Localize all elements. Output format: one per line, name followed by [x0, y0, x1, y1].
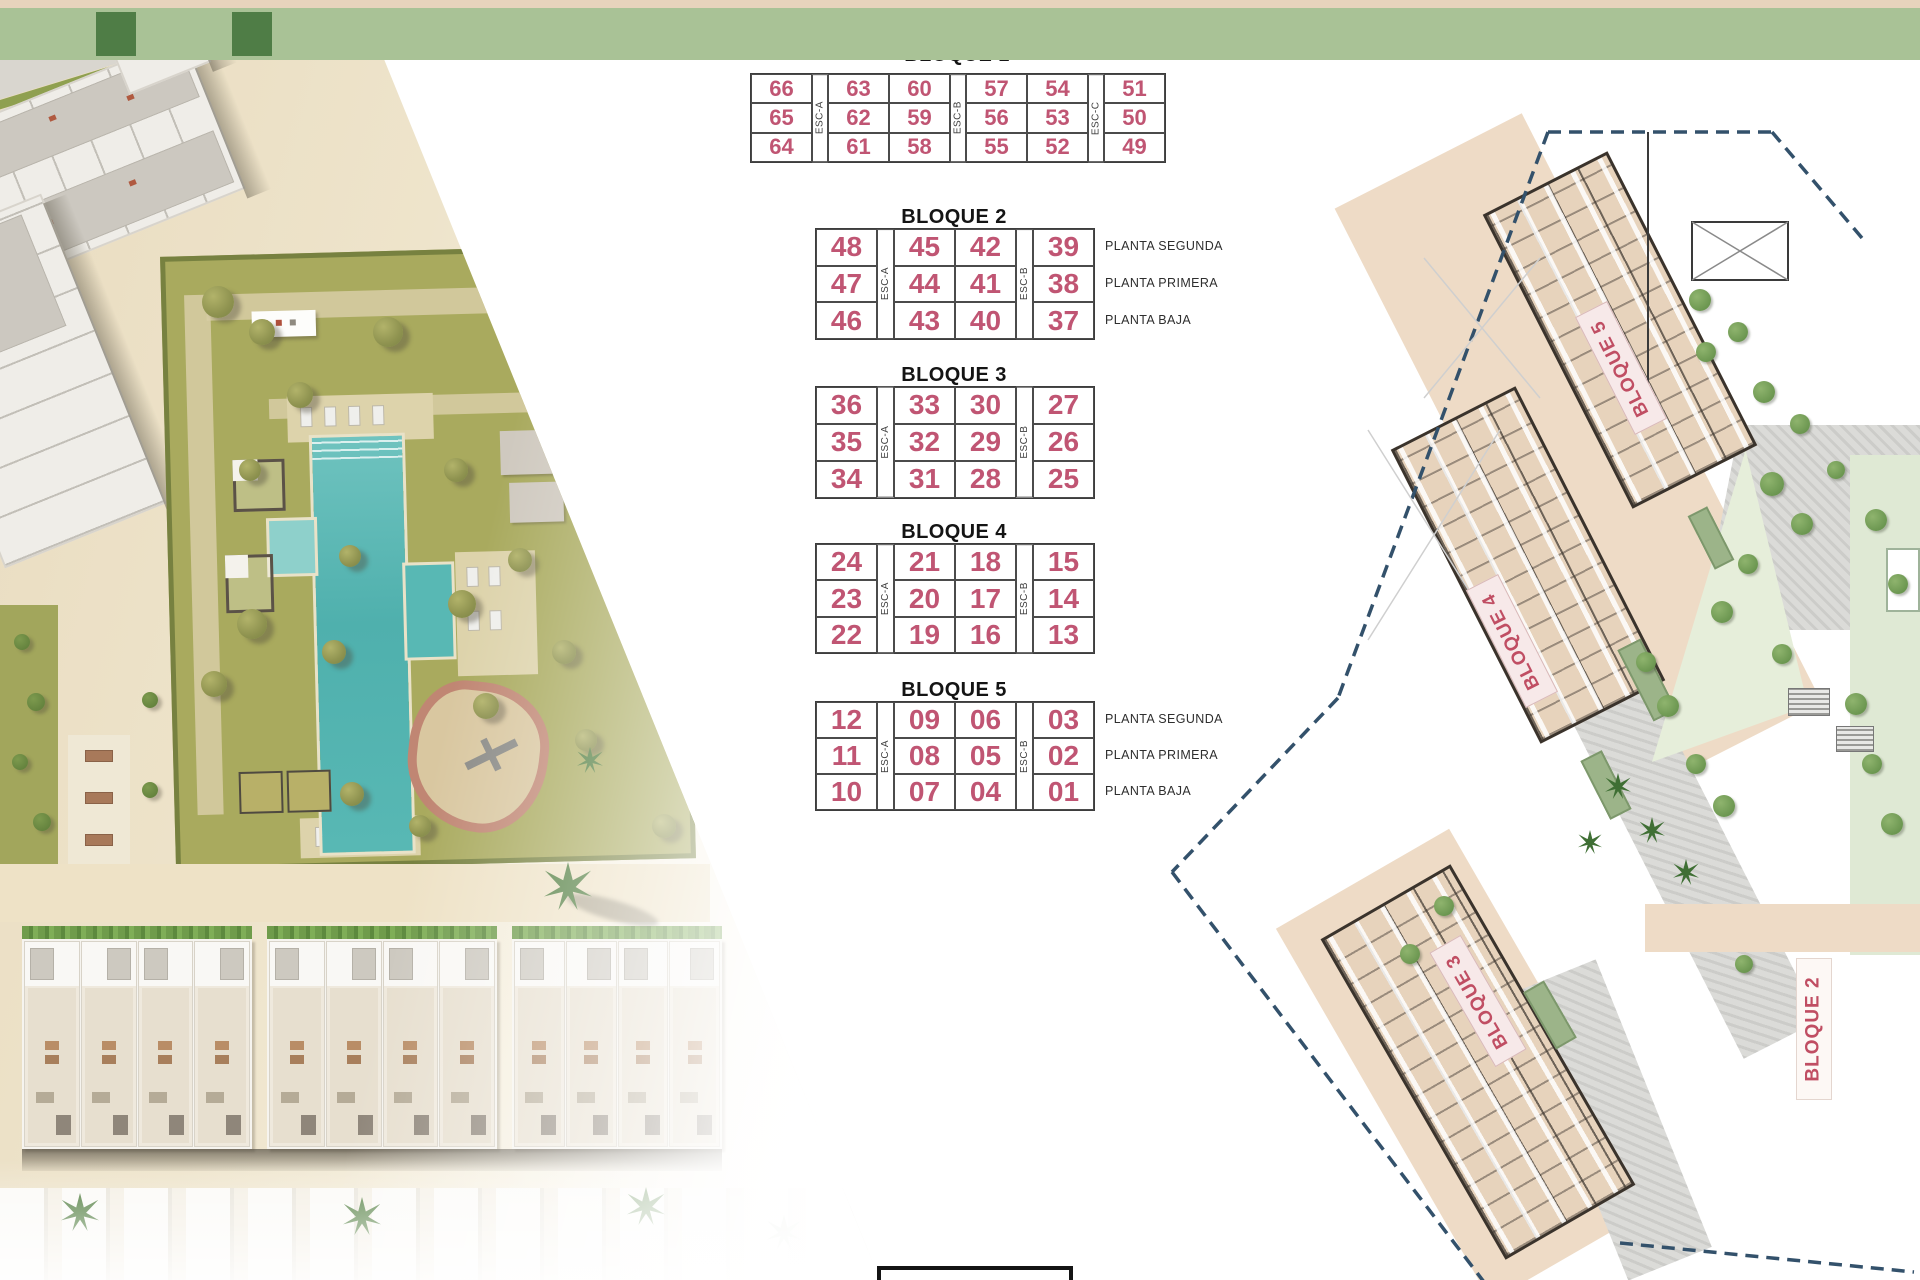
unit-number-cell: 33 [894, 387, 955, 424]
plan-tree [1791, 513, 1813, 535]
garden-plot [287, 770, 332, 813]
pergola [225, 554, 275, 613]
hedge [512, 926, 722, 939]
unit-number-cell: 25 [1033, 461, 1094, 498]
unit-number-cell: 38 [1033, 266, 1094, 303]
swimming-pool-extension [405, 564, 453, 657]
esc-stair-label: ESC-B [1016, 229, 1033, 339]
tree [591, 511, 617, 537]
unit-number-cell: 46 [816, 302, 877, 339]
unit-number-cell: 17 [955, 580, 1016, 616]
floor-label-planta-segunda: PLANTA SEGUNDA [1105, 713, 1275, 726]
floor-label-planta-baja: PLANTA BAJA [1105, 314, 1275, 327]
unit-number-cell: 40 [955, 302, 1016, 339]
unit-number-cell: 21 [894, 544, 955, 580]
bloque2-garden-band [0, 8, 1920, 60]
garden-plot [239, 771, 284, 814]
unit-number-cell: 30 [955, 387, 1016, 424]
plan-tree [1711, 601, 1733, 623]
townhouse-unit [384, 942, 438, 1146]
unit-number-cell: 03 [1033, 702, 1094, 738]
bloque4-title: BLOQUE 4 [815, 521, 1093, 544]
unit-number-cell: 52 [1027, 133, 1088, 162]
townhouse-unit [670, 942, 719, 1146]
plan-pergola [1788, 688, 1830, 716]
unit-number-cell: 12 [816, 702, 877, 738]
unit-number-cell: 01 [1033, 774, 1094, 810]
esc-stair-label: ESC-A [877, 387, 894, 498]
boundary-top-right [1772, 132, 1862, 238]
townhouse-shadow [22, 1149, 722, 1171]
tree [575, 729, 597, 751]
unit-number-cell: 09 [894, 702, 955, 738]
unit-number-cell: 60 [889, 74, 950, 103]
aerial-render-photo [0, 0, 880, 1280]
esc-stair-label: ESC-A [877, 702, 894, 810]
unit-number-cell: 24 [816, 544, 877, 580]
plan-tree [1728, 322, 1748, 342]
townhouse-row [22, 925, 722, 1160]
tree [444, 458, 468, 482]
cabana [500, 430, 561, 476]
plan-tree [1845, 693, 1867, 715]
unit-number-cell: 36 [816, 387, 877, 424]
bush [142, 782, 158, 798]
unit-number-cell: 10 [816, 774, 877, 810]
unit-number-cell: 66 [751, 74, 812, 103]
unit-number-cell: 23 [816, 580, 877, 616]
tree [201, 671, 227, 697]
esc-stair-label: ESC-B [950, 74, 966, 162]
unit-number-cell: 22 [816, 617, 877, 653]
bloque3-unit-table: 363534ESC-A333231302928ESC-B272625 [815, 386, 1095, 499]
unit-number-cell: 14 [1033, 580, 1094, 616]
unit-number-cell: 15 [1033, 544, 1094, 580]
bloque2-unit-table: 484746ESC-A454443424140ESC-B393837 [815, 228, 1095, 340]
tree [373, 317, 403, 347]
plan-tree [1760, 472, 1784, 496]
hedge [232, 12, 272, 56]
plan-tree [1888, 574, 1908, 594]
townhouse-unit [440, 942, 494, 1146]
plan-tree [1686, 754, 1706, 774]
plan-tree [1753, 381, 1775, 403]
plan-tree [1738, 554, 1758, 574]
tree [237, 609, 267, 639]
tree [287, 382, 313, 408]
unit-number-cell: 08 [894, 738, 955, 774]
page: BLOQUE 1 666564ESC-A636261605958ESC-B575… [0, 0, 1920, 1280]
unit-number-cell: 56 [966, 103, 1027, 132]
garden-walkway [68, 735, 130, 867]
bloque2-terrace-band [0, 0, 1920, 8]
esc-stair-label: ESC-A [877, 229, 894, 339]
unit-number-cell: 39 [1033, 229, 1094, 266]
floor-label-planta-segunda: PLANTA SEGUNDA [1105, 240, 1275, 253]
plan-tree [1400, 944, 1420, 964]
unit-number-cell: 48 [816, 229, 877, 266]
unit-number-cell: 34 [816, 461, 877, 498]
plan-tree [1434, 896, 1454, 916]
plan-tree [1790, 414, 1810, 434]
bloque2-title: BLOQUE 2 [815, 206, 1093, 229]
unit-number-cell: 13 [1033, 617, 1094, 653]
unit-number-cell: 55 [966, 133, 1027, 162]
tree [202, 286, 234, 318]
esc-stair-label: ESC-A [812, 74, 828, 162]
esc-stair-label: ESC-A [877, 544, 894, 653]
floor-label-planta-primera: PLANTA PRIMERA [1105, 749, 1275, 762]
unit-number-cell: 29 [955, 424, 1016, 461]
townhouse-block [512, 939, 722, 1149]
townhouse-unit [270, 942, 324, 1146]
townhouse-unit [619, 942, 668, 1146]
bush [142, 692, 158, 708]
garden-path [184, 295, 224, 816]
unit-number-cell: 35 [816, 424, 877, 461]
unit-number-cell: 32 [894, 424, 955, 461]
bush [33, 813, 51, 831]
plan-tree [1881, 813, 1903, 835]
townhouse-block [267, 939, 497, 1149]
tree [448, 590, 476, 618]
unit-number-cell: 49 [1104, 133, 1165, 162]
cabana [509, 481, 564, 522]
unit-number-cell: 11 [816, 738, 877, 774]
unit-number-cell: 16 [955, 617, 1016, 653]
esc-stair-label: ESC-C [1088, 74, 1104, 162]
unit-number-cell: 58 [889, 133, 950, 162]
tree [340, 782, 364, 806]
plan-tree [1772, 644, 1792, 664]
tree [508, 548, 532, 572]
unit-number-cell: 51 [1104, 74, 1165, 103]
townhouse-unit [139, 942, 193, 1146]
unit-number-cell: 31 [894, 461, 955, 498]
townhouse-unit [327, 942, 381, 1146]
townhouse-unit [515, 942, 564, 1146]
tree [648, 676, 672, 700]
unit-number-cell: 50 [1104, 103, 1165, 132]
plan-tree [1657, 695, 1679, 717]
unit-number-cell: 53 [1027, 103, 1088, 132]
unit-number-cell: 05 [955, 738, 1016, 774]
tree [552, 640, 576, 664]
unit-number-cell: 07 [894, 774, 955, 810]
unit-number-cell: 04 [955, 774, 1016, 810]
unit-number-cell: 62 [828, 103, 889, 132]
plan-palm-tree [1578, 830, 1602, 854]
esc-stair-label: ESC-B [1016, 544, 1033, 653]
parking-ramp [1692, 222, 1788, 280]
unit-number-cell: 06 [955, 702, 1016, 738]
plan-pergola [1836, 726, 1874, 752]
townhouse-block [22, 939, 252, 1149]
unit-number-cell: 57 [966, 74, 1027, 103]
tree [599, 291, 625, 317]
unit-number-cell: 20 [894, 580, 955, 616]
hedge [96, 12, 136, 56]
plan-tree [1636, 652, 1656, 672]
airplane-play-structure [464, 739, 518, 771]
unit-number-cell: 59 [889, 103, 950, 132]
unit-number-cell: 43 [894, 302, 955, 339]
floor-label-planta-baja: PLANTA BAJA [1105, 785, 1275, 798]
plan-tree [1689, 289, 1711, 311]
plan-tree [1713, 795, 1735, 817]
hedge [267, 926, 497, 939]
tree [339, 545, 361, 567]
plan-tree [1696, 342, 1716, 362]
plan-label-bloque2: BLOQUE 2 [1796, 958, 1832, 1100]
unit-number-cell: 41 [955, 266, 1016, 303]
ramp-diagonals [1692, 222, 1788, 280]
unit-number-cell: 42 [955, 229, 1016, 266]
unit-number-cell: 27 [1033, 387, 1094, 424]
unit-number-cell: 44 [894, 266, 955, 303]
bush [14, 634, 30, 650]
bloque1-unit-table: 666564ESC-A636261605958ESC-B575655545352… [750, 73, 1166, 163]
plan-tree [1865, 509, 1887, 531]
unit-number-cell: 54 [1027, 74, 1088, 103]
hedge [22, 926, 252, 939]
esc-stair-label: ESC-B [1016, 387, 1033, 498]
floor-label-planta-primera: PLANTA PRIMERA [1105, 277, 1275, 290]
bush [12, 754, 28, 770]
plan-tree [1827, 461, 1845, 479]
tree [409, 815, 431, 837]
unit-number-cell: 26 [1033, 424, 1094, 461]
tree [239, 459, 261, 481]
unit-number-cell: 63 [828, 74, 889, 103]
townhouse-unit [567, 942, 616, 1146]
unit-number-cell: 19 [894, 617, 955, 653]
tree [322, 640, 346, 664]
bottom-cropped-box [877, 1266, 1073, 1280]
unit-number-cell: 28 [955, 461, 1016, 498]
unit-number-cell: 37 [1033, 302, 1094, 339]
townhouse-unit [82, 942, 136, 1146]
tree [628, 412, 652, 436]
bush [27, 693, 45, 711]
townhouse-unit [25, 942, 79, 1146]
tree [249, 319, 275, 345]
bloque5-title: BLOQUE 5 [815, 679, 1093, 702]
bloque4-unit-table: 242322ESC-A212019181716ESC-B151413 [815, 543, 1095, 654]
unit-number-cell: 47 [816, 266, 877, 303]
unit-number-cell: 61 [828, 133, 889, 162]
lower-buildings-faded [0, 1188, 880, 1280]
unit-number-cell: 45 [894, 229, 955, 266]
spa-pool [269, 520, 315, 574]
bloque3-title: BLOQUE 3 [815, 364, 1093, 387]
esc-stair-label: ESC-B [1016, 702, 1033, 810]
unit-number-cell: 65 [751, 103, 812, 132]
unit-number-cell: 64 [751, 133, 812, 162]
bloque5-unit-table: 121110ESC-A090807060504ESC-B030201 [815, 701, 1095, 811]
tree [652, 814, 676, 838]
plan-tree [1862, 754, 1882, 774]
walkway-band [1645, 904, 1920, 952]
townhouse-unit [195, 942, 249, 1146]
unit-number-cell: 18 [955, 544, 1016, 580]
unit-number-cell: 02 [1033, 738, 1094, 774]
plan-tree [1735, 955, 1753, 973]
tree [473, 693, 499, 719]
